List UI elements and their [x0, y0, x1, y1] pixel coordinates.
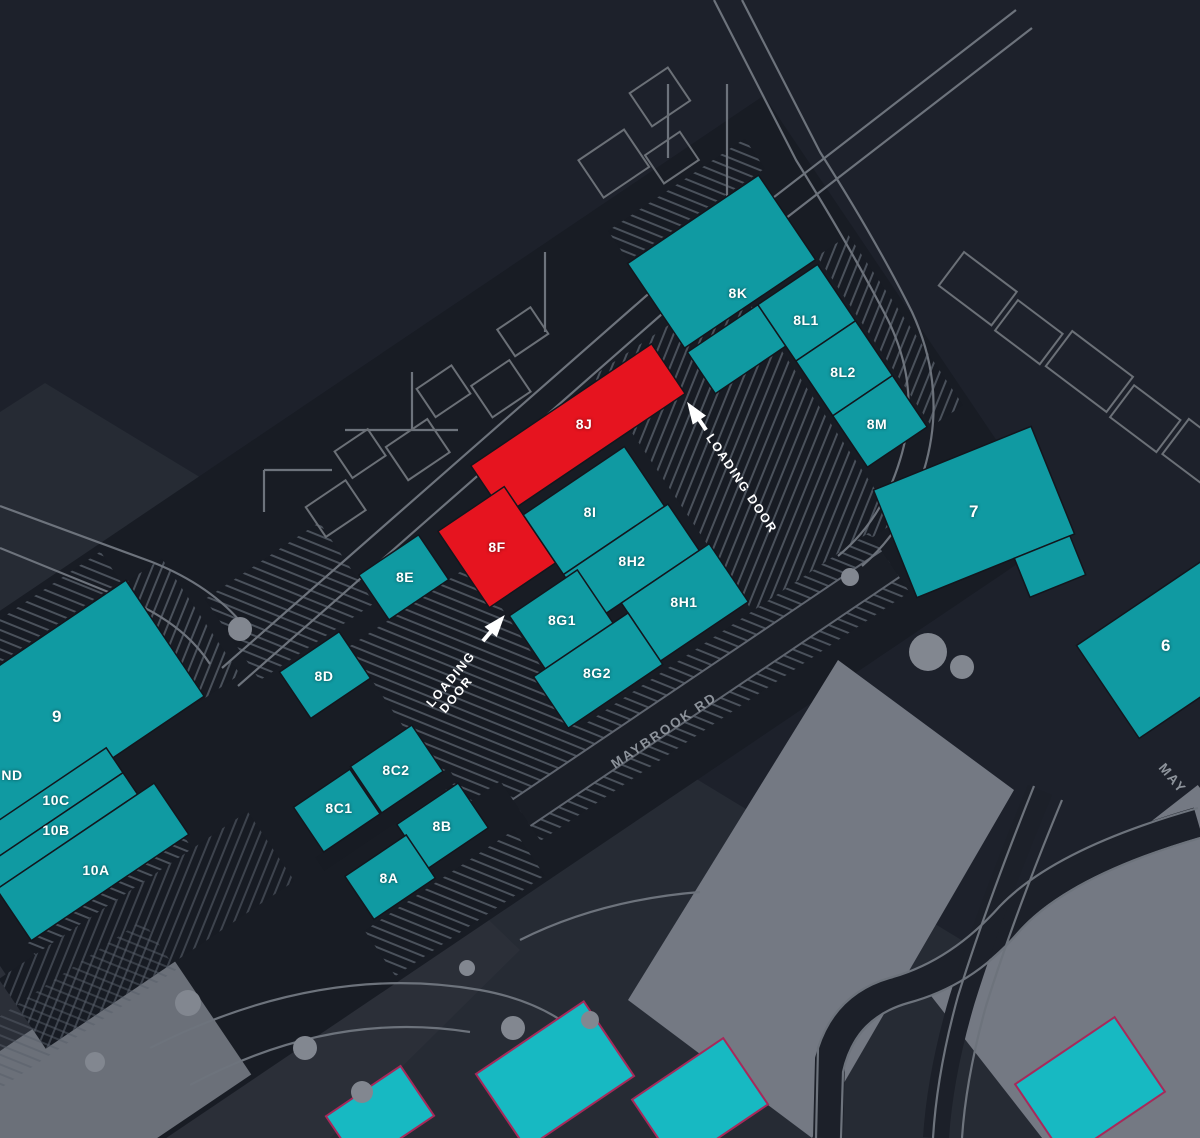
unit-label-10c[interactable]: 10C — [42, 792, 69, 808]
unit-label-8b[interactable]: 8B — [433, 818, 452, 834]
unit-label-8l2[interactable]: 8L2 — [830, 364, 856, 380]
tree — [175, 990, 201, 1016]
unit-label-8c2[interactable]: 8C2 — [382, 762, 409, 778]
tree — [841, 568, 859, 586]
unit-label-8i[interactable]: 8I — [584, 504, 597, 520]
unit-label-8k[interactable]: 8K — [729, 285, 748, 301]
unit-label-8d[interactable]: 8D — [315, 668, 334, 684]
unit-label-8g2[interactable]: 8G2 — [583, 665, 611, 681]
tree — [85, 1052, 105, 1072]
unit-label-10b[interactable]: 10B — [42, 822, 69, 838]
unit-label-8j[interactable]: 8J — [576, 416, 593, 432]
unit-label-7[interactable]: 7 — [969, 502, 979, 522]
tree — [909, 633, 947, 671]
unit-label-9[interactable]: 9 — [52, 707, 62, 727]
unit-label-nd[interactable]: ND — [1, 767, 22, 783]
tree — [351, 1081, 373, 1103]
unit-label-10a[interactable]: 10A — [82, 862, 109, 878]
unit-label-8f[interactable]: 8F — [488, 539, 505, 555]
unit-label-8l1[interactable]: 8L1 — [793, 312, 819, 328]
tree — [581, 1011, 599, 1029]
site-map: MAYBROOK RD MAY LOADING DOOR LOADING DOO… — [0, 0, 1200, 1138]
unit-label-8h2[interactable]: 8H2 — [618, 553, 645, 569]
site-map-canvas: MAYBROOK RD MAY LOADING DOOR LOADING DOO… — [0, 0, 1200, 1138]
unit-label-8h1[interactable]: 8H1 — [670, 594, 697, 610]
unit-label-8m[interactable]: 8M — [867, 416, 887, 432]
unit-label-6[interactable]: 6 — [1161, 636, 1171, 656]
tree — [501, 1016, 525, 1040]
unit-label-8g1[interactable]: 8G1 — [548, 612, 576, 628]
tree — [228, 617, 252, 641]
tree — [950, 655, 974, 679]
unit-label-8e[interactable]: 8E — [396, 569, 414, 585]
tree — [459, 960, 475, 976]
tree — [293, 1036, 317, 1060]
unit-label-8a[interactable]: 8A — [380, 870, 399, 886]
unit-label-8c1[interactable]: 8C1 — [325, 800, 352, 816]
